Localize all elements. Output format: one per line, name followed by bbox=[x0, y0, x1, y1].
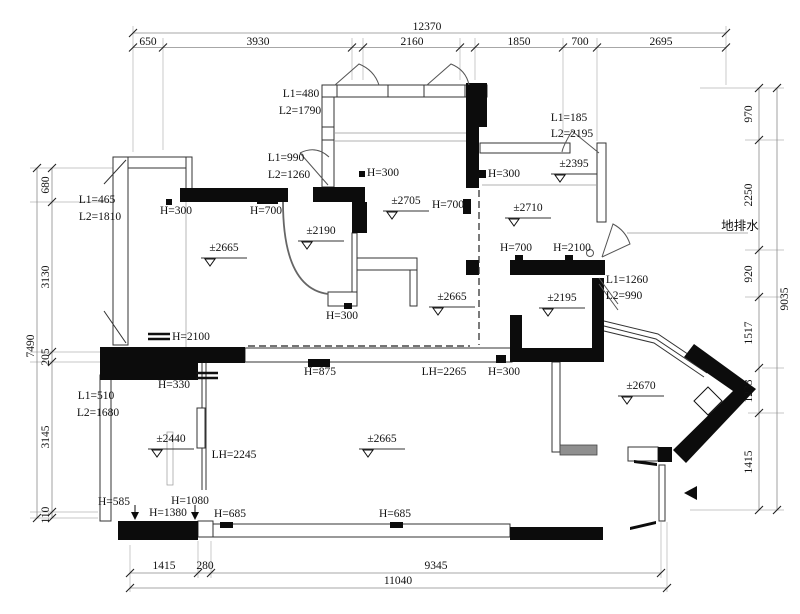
label-h1080: H=1080 bbox=[171, 495, 209, 507]
bottom-window-band bbox=[212, 524, 510, 537]
dim-left-seg: 110 bbox=[40, 506, 52, 523]
dim-right-overall: 9035 bbox=[779, 287, 791, 310]
floor-plan-drawing: 12370 650 3930 2160 1850 700 2695 7490 6… bbox=[0, 0, 800, 614]
terrace-step-wall bbox=[186, 157, 192, 189]
label-h685-a: H=685 bbox=[214, 508, 246, 520]
dim-bottom-seg: 1415 bbox=[153, 560, 176, 572]
balcony-window-band bbox=[322, 85, 487, 97]
dim-top-seg: 2160 bbox=[401, 36, 424, 48]
dim-bottom-seg: 9345 bbox=[425, 560, 448, 572]
pantry-wall bbox=[352, 233, 357, 293]
label-h685-b: H=685 bbox=[379, 508, 411, 520]
entry-door-fan-icon bbox=[602, 224, 630, 257]
label-h700-master: H=700 bbox=[500, 242, 532, 254]
label-l2-master: L2=2195 bbox=[551, 128, 594, 140]
label-h875: H=875 bbox=[304, 366, 336, 378]
label-h2100-master: H=2100 bbox=[553, 242, 591, 254]
label-l2-entry: L2=990 bbox=[606, 290, 643, 302]
dim-right-seg: 1517 bbox=[743, 321, 755, 344]
balcony-left-wall bbox=[322, 97, 334, 187]
dim-right-seg: 970 bbox=[743, 105, 755, 123]
dim-left-seg: 3130 bbox=[40, 265, 52, 288]
black-walls bbox=[100, 83, 756, 540]
dim-left-seg: 3145 bbox=[40, 425, 52, 448]
h685-marker bbox=[390, 522, 403, 528]
level-family: ±2665 bbox=[367, 433, 397, 445]
dim-top-seg: 2695 bbox=[650, 36, 673, 48]
label-lh2265: LH=2265 bbox=[422, 366, 467, 378]
label-h300-dining: H=300 bbox=[367, 167, 399, 179]
dim-right-seg: 2250 bbox=[743, 183, 755, 206]
gray-cabinet bbox=[560, 445, 597, 455]
label-l1-win-tl: L1=465 bbox=[79, 194, 116, 206]
label-l1-balcony: L1=480 bbox=[283, 88, 320, 100]
hall-wall-band bbox=[245, 348, 512, 362]
level-closet: ±2395 bbox=[559, 158, 589, 170]
label-l2-bed1: L2=1260 bbox=[268, 169, 311, 181]
dim-right-seg: 1233 bbox=[743, 379, 755, 402]
doors-and-symbols bbox=[148, 64, 748, 457]
entry-stem-wall bbox=[552, 362, 560, 452]
label-l1-master: L1=185 bbox=[551, 112, 588, 124]
master-right-wall bbox=[597, 143, 606, 222]
level-master: ±2710 bbox=[513, 202, 543, 214]
h2100-symbol bbox=[148, 334, 170, 339]
curved-wall bbox=[283, 202, 328, 294]
label-l2-balcony: L2=1790 bbox=[279, 105, 322, 117]
label-l1-entry: L1=1260 bbox=[606, 274, 649, 286]
north-arrow-icon bbox=[684, 486, 697, 500]
floor-plan-page: 12370 650 3930 2160 1850 700 2695 7490 6… bbox=[0, 0, 800, 614]
shoe-cabinet bbox=[628, 447, 658, 461]
level-bath: ±2195 bbox=[547, 292, 577, 304]
label-h300-hall: H=300 bbox=[488, 366, 520, 378]
label-h330: H=330 bbox=[158, 379, 190, 391]
level-arc-room: ±2190 bbox=[306, 225, 336, 237]
label-l2-win-tl: L2=1810 bbox=[79, 211, 122, 223]
dim-bottom-seg: 280 bbox=[196, 560, 214, 572]
level-bay: ±2670 bbox=[626, 380, 656, 392]
label-h300-counter: H=300 bbox=[326, 310, 358, 322]
label-h1380: H=1380 bbox=[149, 507, 187, 519]
counter bbox=[357, 258, 417, 270]
dim-top-seg: 700 bbox=[571, 36, 589, 48]
counter-base bbox=[328, 292, 357, 306]
h685-marker bbox=[220, 522, 233, 528]
dim-top-seg: 650 bbox=[139, 36, 157, 48]
label-l2-win-bl: L2=1680 bbox=[77, 407, 120, 419]
dim-top-seg: 1850 bbox=[508, 36, 531, 48]
dim-right-seg: 1415 bbox=[743, 450, 755, 473]
label-l1-bed1: L1=990 bbox=[268, 152, 305, 164]
counter-leg bbox=[410, 270, 417, 306]
dim-top-overall: 12370 bbox=[413, 21, 442, 33]
dim-bottom-overall: 11040 bbox=[384, 575, 413, 587]
threshold-mark bbox=[630, 521, 656, 530]
entry-side-wall bbox=[659, 465, 665, 521]
casement-window-icon bbox=[427, 64, 469, 85]
thin-walls bbox=[100, 85, 710, 537]
dimension-text: 12370 650 3930 2160 1850 700 2695 7490 6… bbox=[25, 21, 791, 587]
level-hall: ±2665 bbox=[437, 291, 467, 303]
label-h585: H=585 bbox=[98, 496, 130, 508]
living-window-wall bbox=[113, 157, 128, 345]
dim-left-seg: 205 bbox=[40, 348, 52, 366]
dim-left-overall: 7490 bbox=[25, 334, 37, 357]
door-frame bbox=[198, 521, 213, 537]
dim-right-seg: 920 bbox=[743, 265, 755, 283]
label-floor-drain: 地排水 bbox=[721, 219, 759, 233]
h330-symbol bbox=[196, 373, 218, 378]
sliding-panel bbox=[197, 408, 205, 448]
dim-left-seg: 680 bbox=[40, 176, 52, 194]
level-dining: ±2705 bbox=[391, 195, 421, 207]
label-h2100-living: H=2100 bbox=[172, 331, 210, 343]
label-h300-living: H=300 bbox=[160, 205, 192, 217]
label-h700-dining: H=700 bbox=[432, 199, 464, 211]
casement-window-icon bbox=[335, 64, 379, 85]
label-l1-win-bl: L1=510 bbox=[78, 390, 115, 402]
label-h300-master: H=300 bbox=[488, 168, 520, 180]
label-lh2245: LH=2245 bbox=[212, 449, 257, 461]
master-top-wall bbox=[480, 143, 570, 153]
level-living: ±2665 bbox=[209, 242, 239, 254]
label-h700-living: H=700 bbox=[250, 205, 282, 217]
level-bed2: ±2440 bbox=[156, 433, 186, 445]
dim-top-seg: 3930 bbox=[247, 36, 270, 48]
